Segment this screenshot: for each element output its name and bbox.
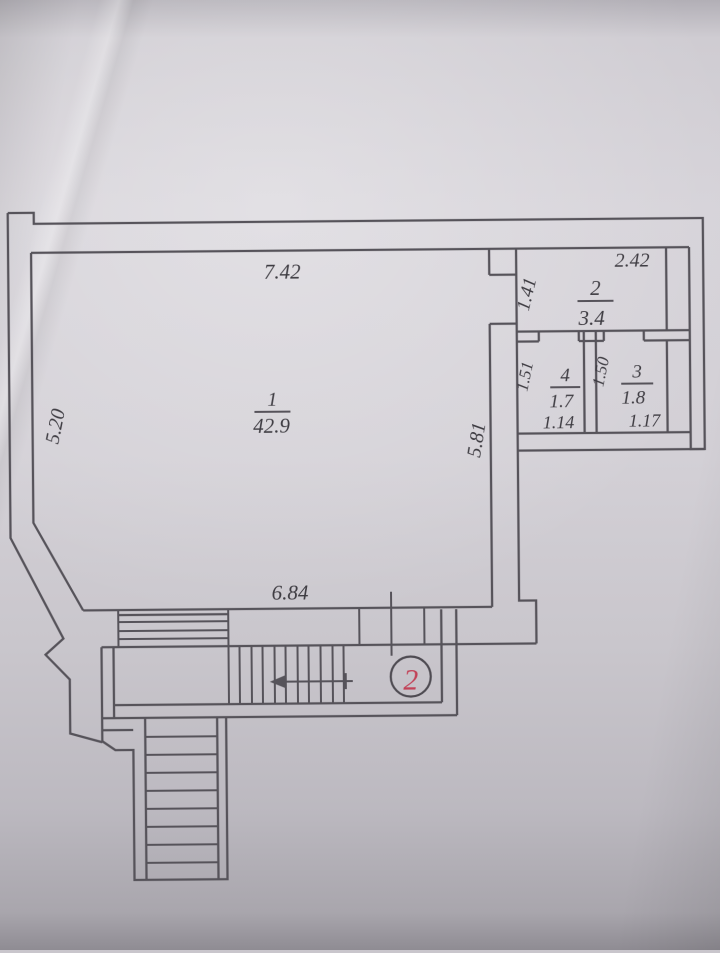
room4-number: 4: [560, 365, 570, 386]
main-room-labels: 7.42 5.20 5.81 6.84 1 42.9: [40, 258, 492, 607]
room3-number: 3: [631, 362, 642, 383]
main-room-left-dimension: 5.20: [41, 407, 70, 446]
room2-top-dimension: 2.42: [615, 249, 650, 271]
unit-number: 2: [403, 663, 418, 696]
stair-direction-arrow: [270, 673, 353, 690]
room3-left-dimension: 1.50: [588, 355, 613, 388]
entry-door-opening: [359, 591, 425, 656]
room3-labels: 1.50 3 1.8 1.17: [588, 354, 661, 431]
room3-bottom-dimension: 1.17: [629, 410, 662, 430]
main-room-area: 42.9: [253, 414, 290, 438]
main-room-top-dimension: 7.42: [264, 260, 301, 284]
main-room-number: 1: [267, 389, 277, 411]
room4-area: 1.7: [549, 391, 574, 412]
room4-bottom-dimension: 1.14: [543, 412, 575, 432]
room4-labels: 1.51 4 1.7 1.14: [512, 359, 580, 432]
main-room-bottom-dimension: 6.84: [272, 580, 309, 604]
room2-labels: 2.42 1.41 2 3.4: [513, 249, 651, 330]
floor-plan-drawing: 7.42 5.20 5.81 6.84 1 42.9 2.42 1.41 2 3…: [0, 0, 720, 953]
stair-flight-treads: [228, 645, 344, 704]
unit-number-badge: 2: [391, 656, 431, 696]
main-room-right-dimension: 5.81: [463, 421, 490, 459]
room2-area: 3.4: [577, 306, 605, 330]
room3-area: 1.8: [621, 388, 645, 409]
room2-number: 2: [590, 276, 601, 300]
lower-stair-column: [145, 717, 218, 880]
